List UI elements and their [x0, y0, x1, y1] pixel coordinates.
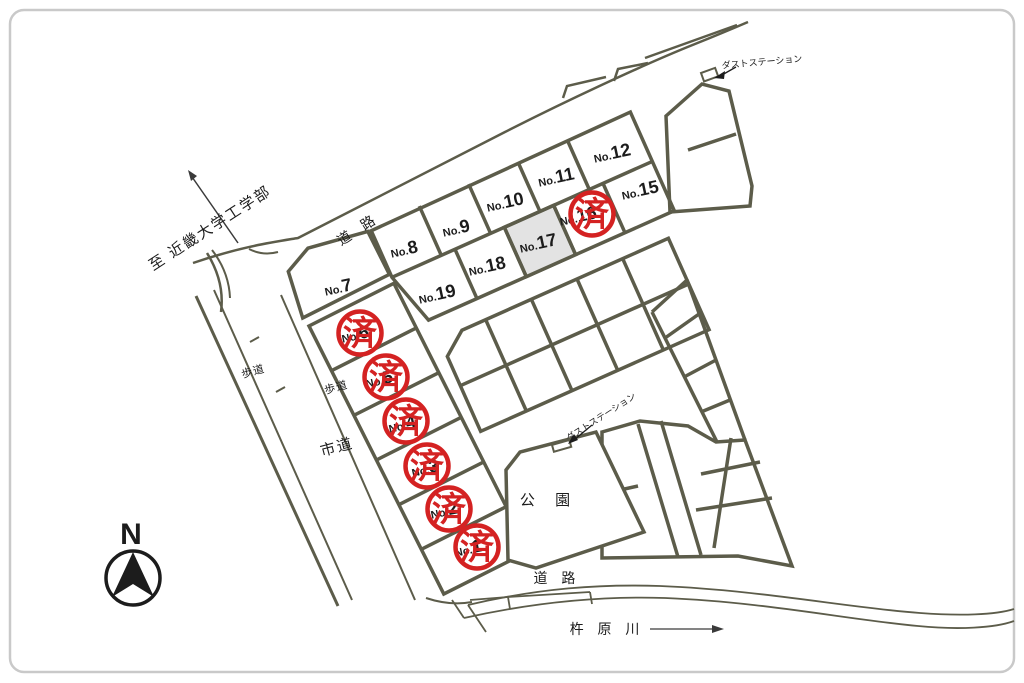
sold-stamp-text: 済: [343, 315, 378, 353]
dust-station-box: [701, 68, 718, 82]
sold-stamp-no4: 済: [385, 400, 428, 443]
corner-curve: [249, 249, 278, 253]
lot-site-map: 至 近畿大学工学部 ダストステーション ダストステーション 道 路 市道 歩道 …: [0, 0, 1024, 683]
dust-station-callout-top: ダストステーション: [714, 53, 803, 79]
sold-stamp-no16: 済: [571, 193, 614, 236]
top-road-branch: [645, 25, 737, 58]
lot-divider: [696, 438, 772, 548]
park-label: 公 園: [520, 492, 578, 509]
upper-right-block: [666, 68, 752, 212]
sold-stamp-no3: 済: [406, 445, 449, 488]
sold-stamp-no1: 済: [456, 526, 499, 569]
lot-block-outline: [666, 84, 752, 212]
road-label-bottom: 道 路: [534, 570, 581, 586]
north-arrow-icon: [112, 552, 154, 597]
city-road-label: 市道: [319, 435, 356, 460]
river-flow: [650, 625, 724, 633]
north-compass: N: [106, 518, 160, 605]
compass-n-label: N: [120, 518, 142, 551]
sold-stamp-no6: 済: [339, 312, 382, 355]
river-bank-line: [464, 598, 1014, 628]
sold-stamp-text: 済: [432, 491, 467, 529]
corner-curve: [426, 598, 472, 603]
destination-arrow-icon: [188, 170, 197, 181]
sidewalk-label: 歩道: [240, 361, 267, 381]
sold-stamp-text: 済: [389, 403, 424, 441]
internal-road-line: [638, 421, 701, 557]
sold-stamp-text: 済: [369, 359, 404, 397]
river: [452, 586, 1014, 632]
sold-stamp-text: 済: [575, 196, 610, 234]
river-flow-arrow-icon: [712, 625, 724, 633]
dust-station-label: ダストステーション: [721, 53, 802, 71]
lot-divider: [688, 134, 736, 150]
sold-stamp-text: 済: [460, 529, 495, 567]
sold-stamp-text: 済: [410, 448, 445, 486]
river-label: 杵 原 川: [570, 621, 645, 637]
sold-stamp-no2: 済: [428, 488, 471, 531]
sold-stamp-no5: 済: [365, 356, 408, 399]
road-bay-mark: [563, 77, 606, 98]
river-bank-line: [468, 586, 1014, 615]
